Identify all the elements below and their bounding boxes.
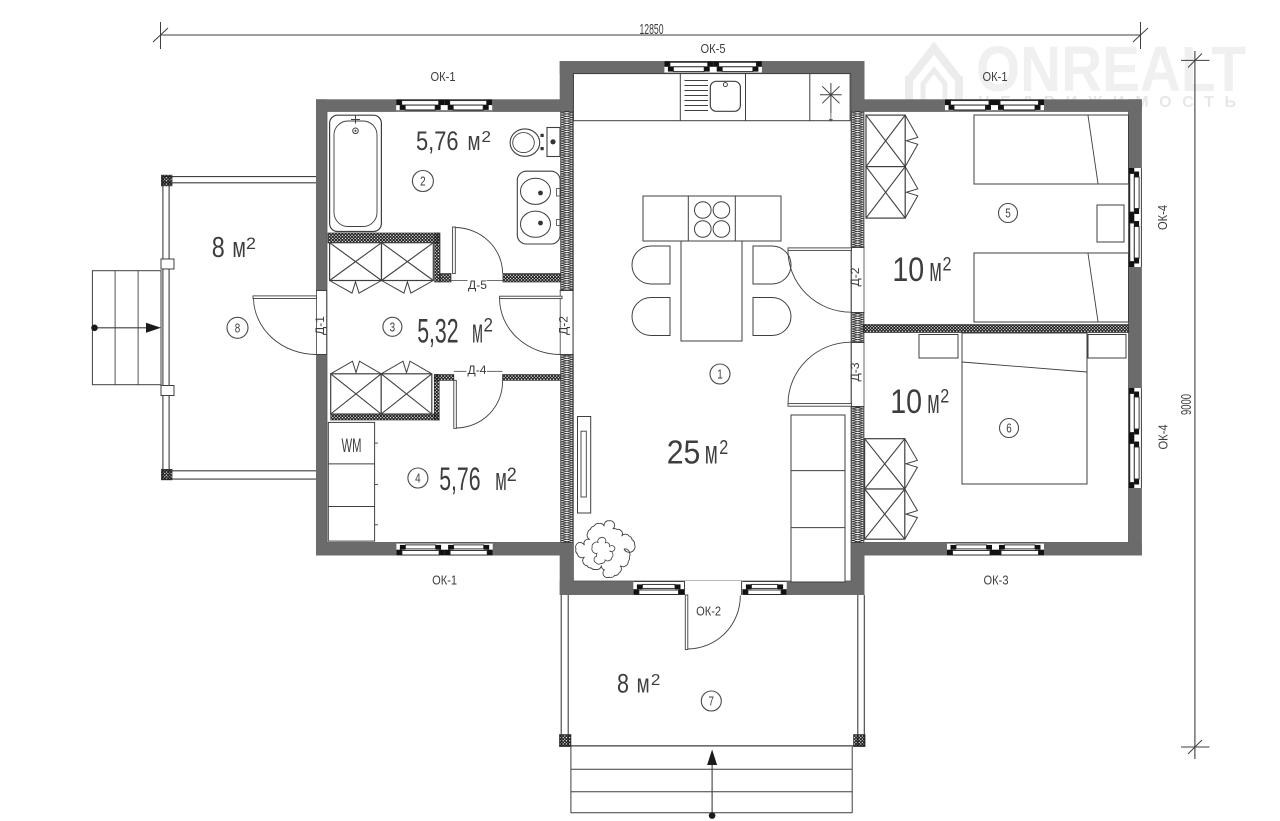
svg-text:3: 3 [390,320,396,335]
svg-text:Д-2: Д-2 [559,316,571,335]
svg-text:1: 1 [717,367,723,382]
svg-text:ОК-5: ОК-5 [701,42,726,56]
svg-text:м: м [705,433,718,470]
svg-text:Д-3: Д-3 [850,363,862,382]
svg-text:ОК-4: ОК-4 [1156,205,1170,230]
svg-text:Д-1: Д-1 [315,316,327,335]
svg-text:Д-2: Д-2 [850,268,862,287]
svg-text:5: 5 [1005,206,1011,221]
svg-text:ОК-4: ОК-4 [1157,424,1171,449]
svg-text:м: м [495,461,507,497]
svg-text:25: 25 [667,433,701,470]
svg-text:2: 2 [246,234,256,253]
svg-text:2: 2 [482,129,492,146]
svg-text:2: 2 [651,672,661,689]
svg-text:6: 6 [1006,421,1012,436]
svg-text:4: 4 [415,471,421,486]
svg-text:Д-5: Д-5 [468,280,487,292]
svg-text:9000: 9000 [1178,394,1195,415]
svg-text:м: м [472,312,483,350]
svg-text:5,76: 5,76 [439,461,480,497]
svg-text:12850: 12850 [640,21,664,38]
svg-text:м: м [929,251,941,289]
svg-text:ОК-1: ОК-1 [983,70,1008,84]
svg-text:ОК-3: ОК-3 [984,574,1009,588]
svg-text:ОК-1: ОК-1 [431,70,456,84]
svg-text:м: м [637,668,650,698]
svg-text:8: 8 [617,668,629,698]
svg-text:8: 8 [235,321,241,336]
svg-text:5,32: 5,32 [417,312,458,350]
svg-text:Д-4: Д-4 [468,365,488,377]
svg-text:2: 2 [484,316,494,337]
svg-text:ОК-1: ОК-1 [432,574,457,588]
svg-text:10: 10 [890,383,922,421]
svg-text:10: 10 [892,251,924,289]
svg-text:м: м [232,232,246,264]
svg-text:5,76: 5,76 [416,126,459,156]
svg-text:8: 8 [212,232,225,264]
svg-text:2: 2 [943,254,952,275]
svg-text:2: 2 [940,387,949,408]
svg-text:ОК-2: ОК-2 [696,605,721,619]
svg-text:2: 2 [719,437,728,459]
svg-text:7: 7 [709,694,715,709]
svg-text:2: 2 [507,465,517,486]
svg-text:2: 2 [420,174,426,189]
svg-text:WM: WM [342,436,362,457]
svg-text:м: м [468,126,481,156]
svg-text:м: м [927,383,939,421]
